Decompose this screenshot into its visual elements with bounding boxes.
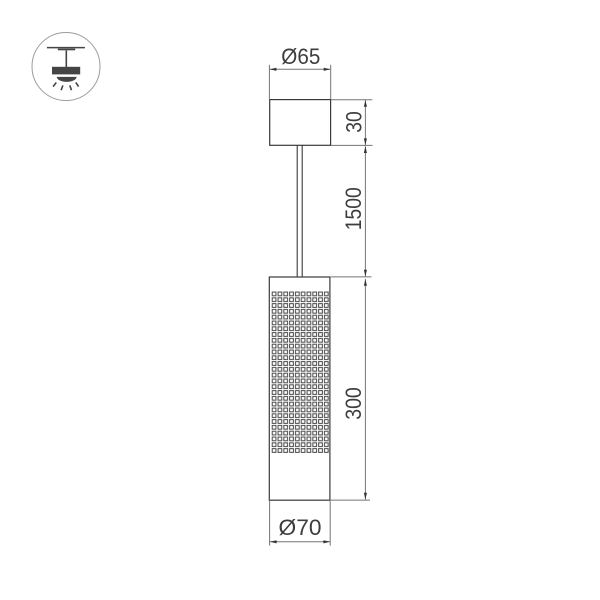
svg-text:30: 30 xyxy=(341,111,366,133)
svg-text:300: 300 xyxy=(341,387,366,420)
svg-text:Ø65: Ø65 xyxy=(281,44,320,69)
svg-text:Ø70: Ø70 xyxy=(279,515,322,540)
svg-text:1500: 1500 xyxy=(341,187,366,230)
